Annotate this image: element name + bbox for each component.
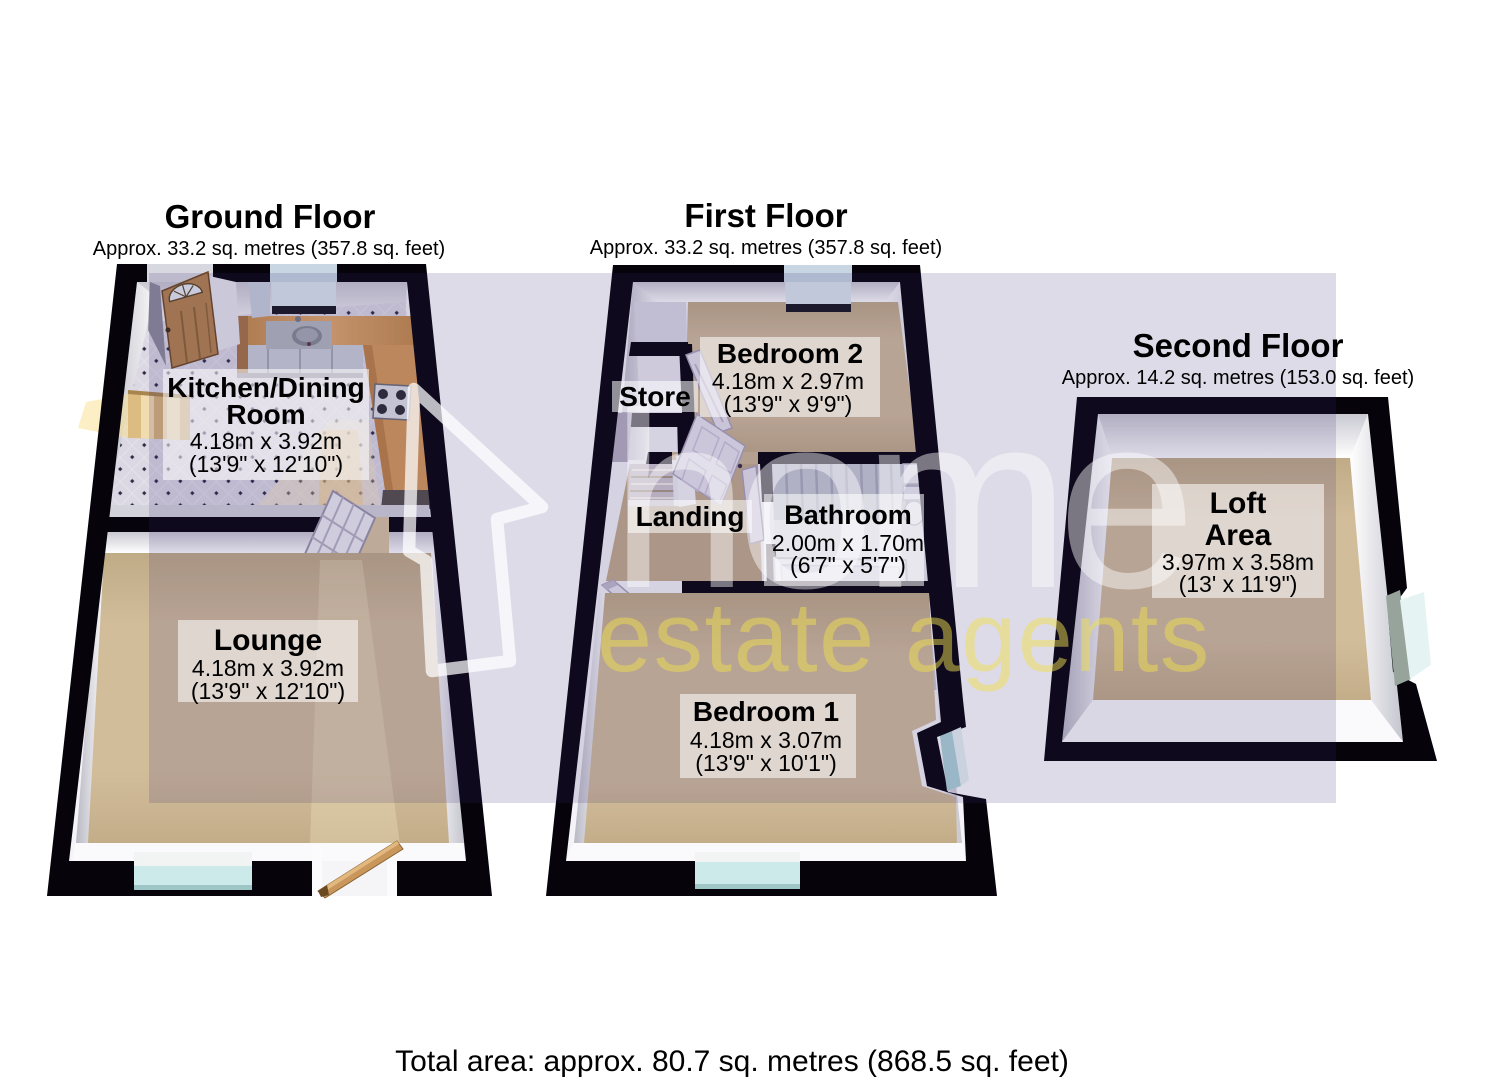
svg-text:Bedroom 2: Bedroom 2 (717, 338, 863, 369)
svg-text:estate agents: estate agents (597, 581, 1211, 692)
svg-text:(6'7" x 5'7"): (6'7" x 5'7") (790, 552, 906, 578)
svg-text:Total area: approx. 80.7 sq. m: Total area: approx. 80.7 sq. metres (868… (395, 1045, 1069, 1078)
svg-text:Approx. 14.2 sq. metres (153.0: Approx. 14.2 sq. metres (153.0 sq. feet) (1062, 367, 1414, 389)
svg-text:(13'9" x 9'9"): (13'9" x 9'9") (724, 391, 853, 417)
svg-text:(13'9" x 12'10"): (13'9" x 12'10") (191, 678, 345, 704)
svg-text:Area: Area (1205, 519, 1272, 552)
svg-text:(13'9" x 10'1"): (13'9" x 10'1") (695, 750, 836, 776)
svg-text:First Floor: First Floor (684, 197, 847, 234)
svg-text:Approx. 33.2 sq. metres (357.8: Approx. 33.2 sq. metres (357.8 sq. feet) (590, 237, 942, 259)
svg-text:Second Floor: Second Floor (1133, 327, 1344, 364)
svg-text:Landing: Landing (636, 501, 745, 532)
svg-text:Ground Floor: Ground Floor (165, 198, 376, 235)
svg-text:Lounge: Lounge (214, 624, 322, 657)
svg-text:(13' x 11'9"): (13' x 11'9") (1179, 571, 1298, 597)
svg-text:Bathroom: Bathroom (784, 500, 912, 530)
svg-text:(13'9" x 12'10"): (13'9" x 12'10") (189, 451, 343, 477)
svg-text:Bedroom 1: Bedroom 1 (693, 696, 839, 727)
svg-text:Loft: Loft (1210, 487, 1267, 520)
svg-text:Room: Room (226, 399, 305, 430)
svg-text:Approx. 33.2 sq. metres (357.8: Approx. 33.2 sq. metres (357.8 sq. feet) (93, 238, 445, 260)
svg-text:Store: Store (619, 381, 691, 412)
